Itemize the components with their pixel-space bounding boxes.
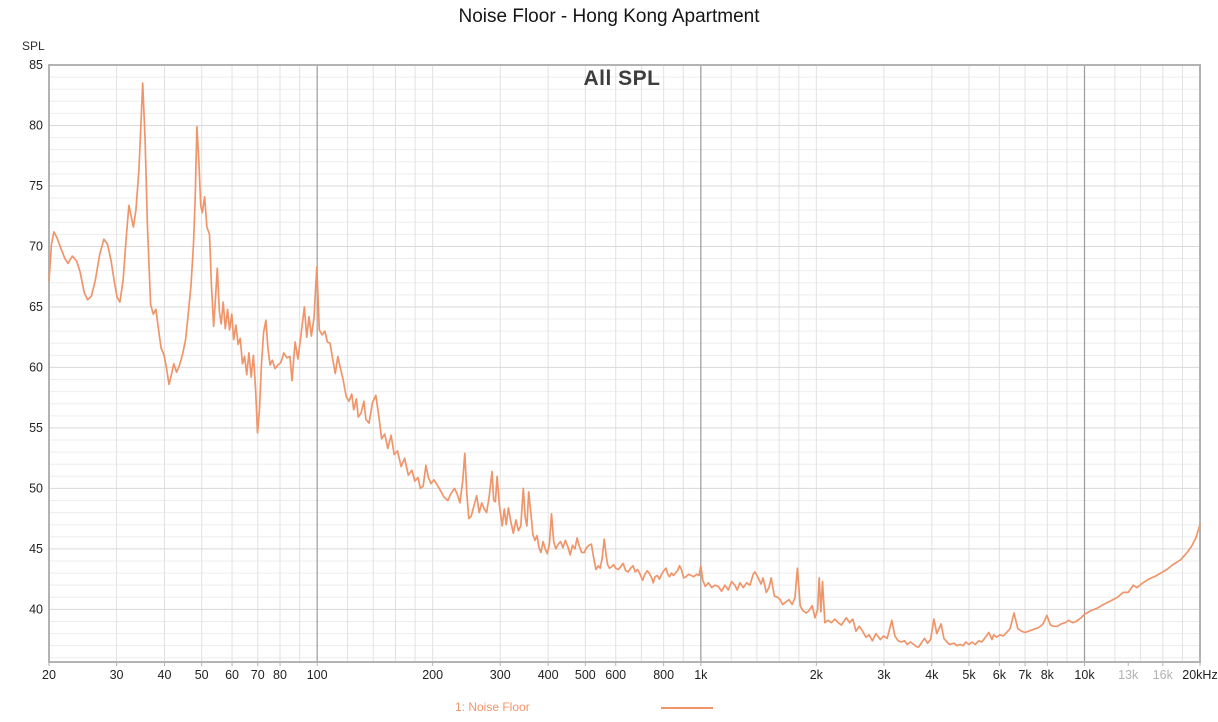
x-tick-label: 200 (422, 668, 443, 682)
legend-series-line-swatch (661, 707, 713, 709)
x-tick-label: 300 (490, 668, 511, 682)
x-tick-label: 7k (1018, 668, 1032, 682)
x-tick-label: 3k (877, 668, 891, 682)
y-tick-label: 80 (29, 118, 43, 132)
noise-floor-trace (49, 83, 1200, 647)
x-tick-label: 5k (962, 668, 976, 682)
y-tick-label: 45 (29, 542, 43, 556)
x-tick-label: 20 (42, 668, 56, 682)
x-tick-label: 20kHz (1182, 668, 1217, 682)
overlay-label: All SPL (0, 67, 1218, 91)
x-tick-label: 30 (110, 668, 124, 682)
x-tick-label: 4k (925, 668, 939, 682)
x-tick-label: 6k (993, 668, 1007, 682)
x-tick-label: 40 (158, 668, 172, 682)
plot-svg: 8580757065605550454020304050607080100200… (0, 0, 1218, 722)
x-tick-label: 60 (225, 668, 239, 682)
x-tick-label: 16k (1153, 668, 1174, 682)
y-tick-label: 40 (29, 602, 43, 616)
x-tick-label: 50 (195, 668, 209, 682)
legend-series-label: 1: Noise Floor (455, 700, 530, 714)
x-tick-label: 8k (1041, 668, 1055, 682)
y-tick-label: 55 (29, 421, 43, 435)
x-tick-label: 2k (810, 668, 824, 682)
x-tick-label: 800 (653, 668, 674, 682)
x-tick-label: 100 (307, 668, 328, 682)
y-tick-label: 60 (29, 360, 43, 374)
x-tick-label: 13k (1118, 668, 1139, 682)
y-tick-label: 50 (29, 481, 43, 495)
x-tick-label: 80 (273, 668, 287, 682)
legend: 1: Noise Floor (0, 699, 1218, 717)
x-tick-label: 600 (605, 668, 626, 682)
y-tick-label: 75 (29, 179, 43, 193)
x-tick-label: 70 (251, 668, 265, 682)
x-tick-label: 1k (694, 668, 708, 682)
x-tick-label: 400 (538, 668, 559, 682)
x-tick-label: 500 (575, 668, 596, 682)
y-tick-label: 70 (29, 239, 43, 253)
x-tick-label: 10k (1074, 668, 1095, 682)
y-tick-label: 65 (29, 300, 43, 314)
plot-border (49, 65, 1200, 662)
